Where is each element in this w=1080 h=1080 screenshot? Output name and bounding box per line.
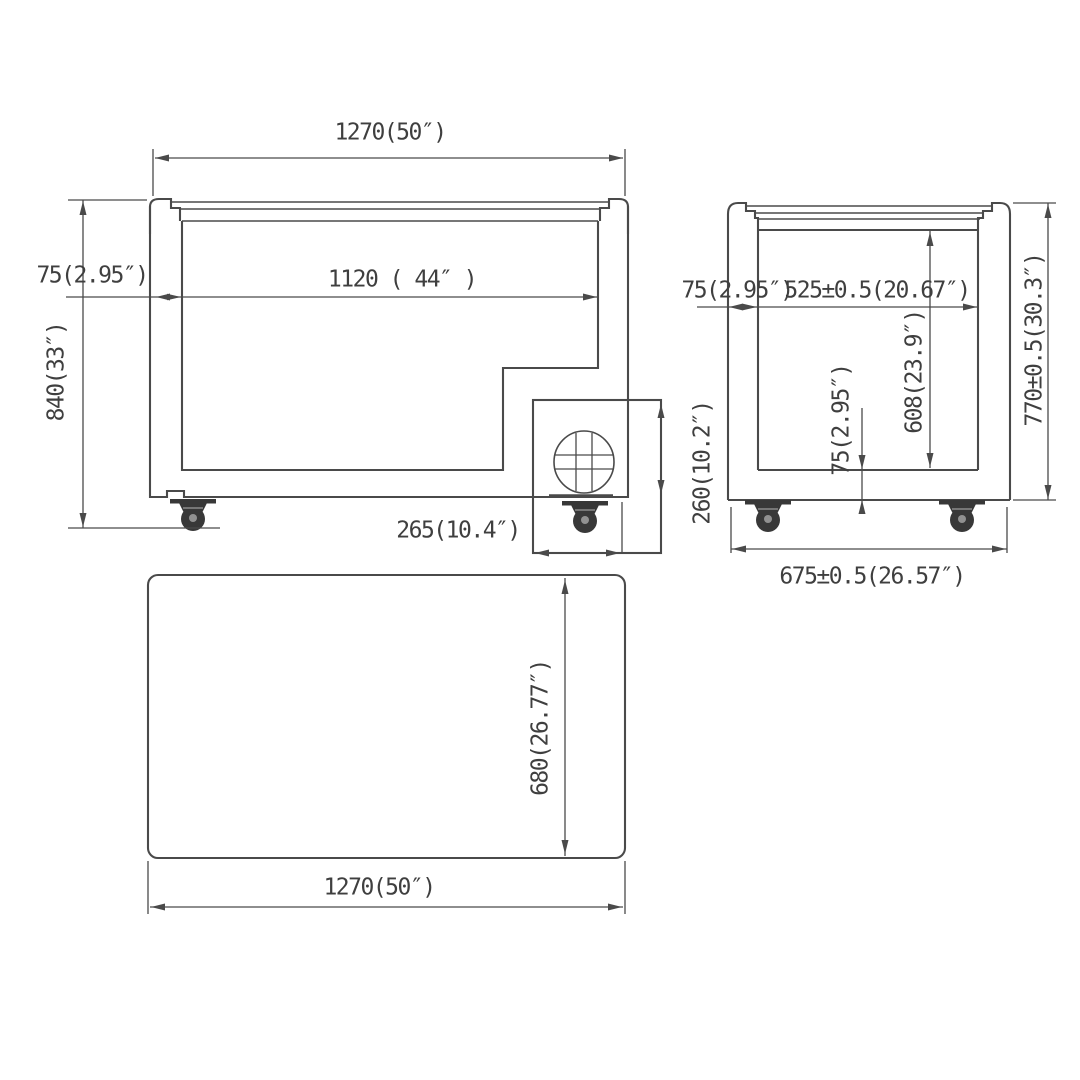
compressor-fan-icon — [549, 431, 614, 496]
side-lid-glass-lines — [746, 206, 992, 219]
dim-side-bottom-thickness: 75(2.95″) — [831, 364, 854, 475]
dim-front-wall-thickness: 75(2.95″) — [36, 265, 147, 288]
dim-front-overall-width: 1270(50″) — [334, 122, 445, 145]
front-lid-left-cap — [150, 199, 180, 234]
dim-compressor-width: 265(10.4″) — [396, 520, 519, 543]
side-interior-depth-dimension — [697, 304, 978, 311]
front-height-dimension — [68, 200, 220, 528]
dim-side-interior-height: 608(23.9″) — [904, 310, 927, 433]
dim-compressor-height: 260(10.2″) — [692, 401, 715, 524]
dim-side-overall-height: 770±0.5(30.3″) — [1024, 254, 1047, 427]
side-left-wall — [728, 203, 758, 500]
freezer-dimension-drawing: 1270(50″) 75(2.95″) 840(33″) 1120 ( 44″ … — [0, 0, 1080, 1080]
side-interior-liner — [758, 230, 978, 470]
dim-front-overall-height: 840(33″) — [46, 323, 69, 422]
dim-side-overall-depth: 675±0.5(26.57″) — [779, 566, 964, 589]
front-lid-right-cap — [600, 199, 628, 234]
top-depth-dimension — [562, 578, 569, 856]
dim-top-depth: 680(26.77″) — [530, 660, 553, 796]
dim-side-interior-depth: 525±0.5(20.67″) — [784, 280, 969, 303]
dim-front-interior-width: 1120 ( 44″ ) — [328, 269, 476, 292]
front-cabinet-outline — [150, 206, 628, 497]
front-lid-glass-lines — [171, 202, 609, 221]
side-bottom-thickness-dimension — [859, 408, 866, 514]
dim-side-wall-thickness: 75(2.95″) — [681, 280, 792, 303]
side-right-wall — [978, 203, 1010, 500]
compressor-box — [533, 400, 661, 553]
drawing-linework — [0, 0, 1080, 1080]
side-view — [697, 203, 1056, 553]
dim-top-width: 1270(50″) — [323, 877, 434, 900]
front-width-dimension — [153, 149, 625, 196]
front-interior-liner — [182, 221, 598, 470]
front-view — [66, 149, 665, 557]
side-interior-height-dimension — [927, 231, 934, 468]
front-interior-dimension — [66, 294, 598, 301]
